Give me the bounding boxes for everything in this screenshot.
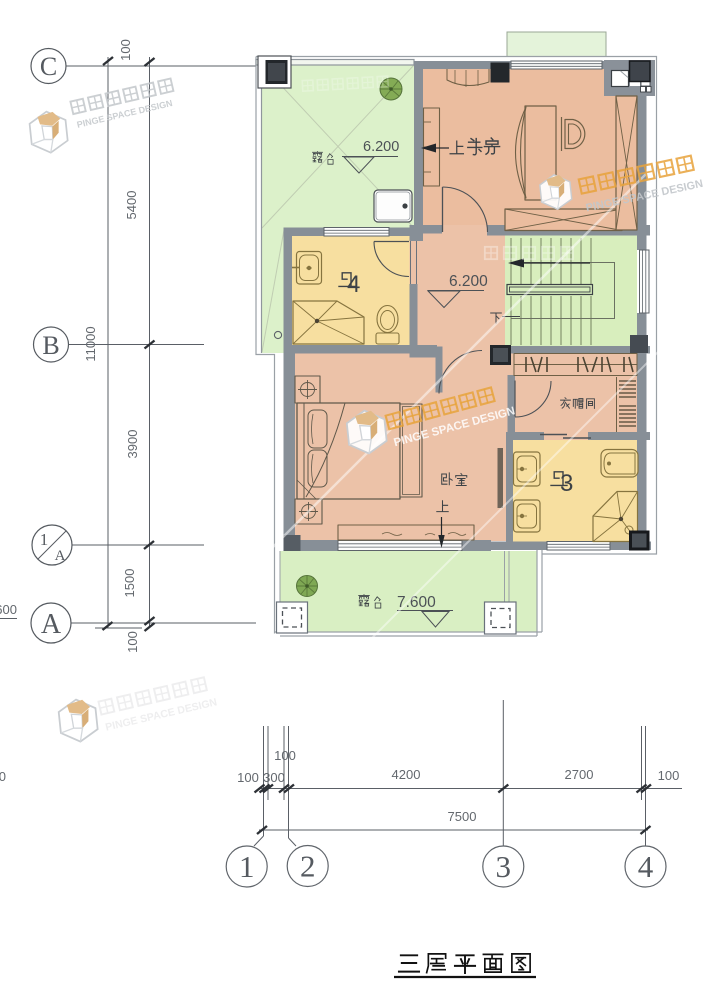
svg-text:A: A (41, 609, 62, 640)
svg-text:0: 0 (0, 769, 6, 784)
svg-text:4: 4 (347, 271, 360, 298)
svg-text:100: 100 (658, 768, 680, 783)
svg-text:100: 100 (274, 748, 296, 763)
svg-text:11000: 11000 (83, 326, 98, 361)
svg-text:3900: 3900 (125, 430, 140, 459)
svg-text:2: 2 (300, 849, 316, 884)
svg-text:600: 600 (0, 602, 17, 617)
svg-text:100: 100 (237, 770, 259, 785)
svg-text:1500: 1500 (122, 569, 137, 598)
svg-text:300: 300 (263, 770, 285, 785)
svg-text:PINGE SPACE DESIGN: PINGE SPACE DESIGN (76, 98, 174, 130)
svg-text:2700: 2700 (565, 767, 594, 782)
svg-text:3: 3 (496, 849, 512, 884)
svg-text:3: 3 (560, 470, 573, 497)
svg-text:1: 1 (239, 849, 255, 884)
svg-text:C: C (40, 52, 57, 81)
svg-text:1: 1 (40, 530, 49, 549)
svg-text:B: B (42, 331, 59, 360)
svg-text:4: 4 (638, 849, 654, 884)
svg-text:A: A (55, 548, 66, 564)
svg-text:100: 100 (125, 631, 140, 653)
svg-text:6.200: 6.200 (363, 139, 399, 155)
svg-text:5400: 5400 (124, 191, 139, 220)
svg-text:4200: 4200 (392, 767, 421, 782)
svg-text:7500: 7500 (448, 809, 477, 824)
svg-text:6.200: 6.200 (449, 273, 488, 290)
svg-text:PINGE SPACE DESIGN: PINGE SPACE DESIGN (104, 696, 218, 733)
svg-text:100: 100 (118, 39, 133, 61)
